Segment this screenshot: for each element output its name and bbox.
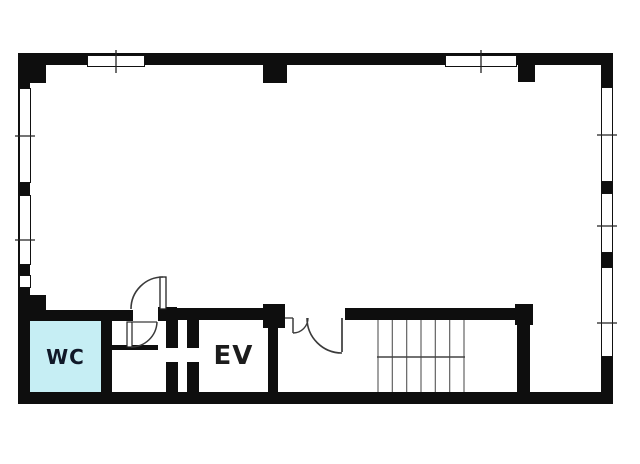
stair-treads	[378, 320, 464, 392]
corridor-door-swing-arc	[131, 277, 163, 309]
floor-plan: WC EV	[0, 0, 640, 464]
stair-hall-door	[285, 318, 342, 353]
stair-hall-door-main-arc	[307, 318, 342, 353]
plan-linework	[0, 0, 640, 464]
wc-door-swing-arc	[131, 322, 157, 347]
corridor-door-leaf	[160, 277, 166, 309]
window-tick-marks	[15, 50, 617, 323]
corridor-door	[131, 277, 166, 309]
staircase	[377, 320, 465, 392]
wc-door	[127, 322, 157, 347]
stair-hall-door-small-arc	[293, 318, 308, 333]
wc-door-leaf	[127, 322, 132, 347]
